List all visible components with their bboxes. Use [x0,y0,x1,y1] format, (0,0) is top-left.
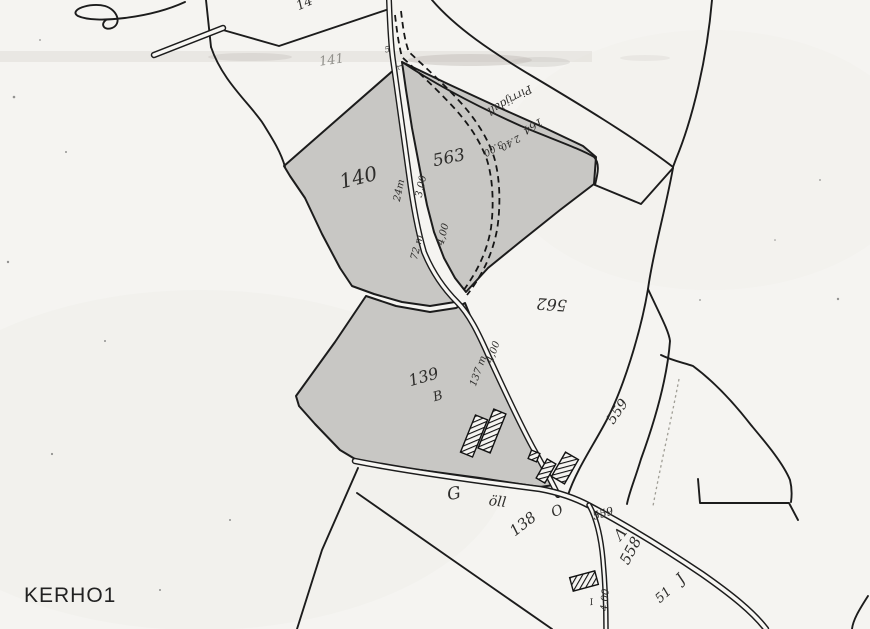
street-name-oll: öll [488,493,507,511]
corner-label-kerho1: KERHO1 [24,584,116,607]
cadastral-map-scan: 141 14 140 563 Pirrijdall 164 24m 3,00 7… [0,0,870,629]
width-4-00-bottom: 4.00 [599,588,612,613]
parcel-label-562: 562 [536,294,568,315]
map-canvas: 141 14 140 563 Pirrijdall 164 24m 3,00 7… [0,0,870,629]
